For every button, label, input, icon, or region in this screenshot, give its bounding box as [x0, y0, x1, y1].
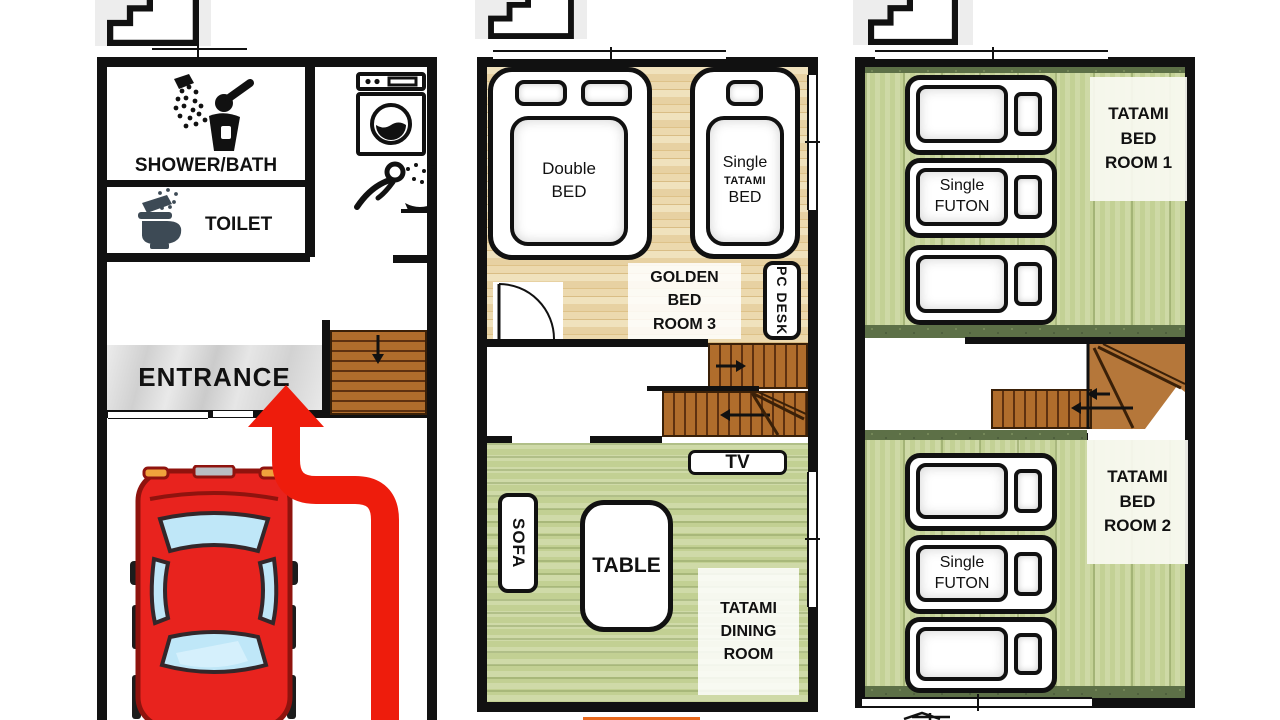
futon-mattress: Single FUTON — [916, 545, 1008, 602]
table: TABLE — [580, 500, 673, 632]
stair-direction-icons — [865, 344, 1185, 430]
floor3-panel: Single FUTON TATAMI BED ROOM 1 — [855, 57, 1195, 708]
wall — [487, 339, 708, 347]
window-tick — [992, 47, 994, 64]
pillow — [726, 80, 763, 106]
stairs-lower-flight — [662, 391, 808, 437]
window-tick — [197, 45, 199, 62]
dining-label-3: ROOM — [724, 643, 774, 666]
face-wash-icon — [345, 159, 437, 215]
dining-room-label: TATAMI DINING ROOM — [698, 568, 799, 695]
dining-label-2: DINING — [721, 620, 777, 643]
washing-machine-icon — [355, 71, 427, 157]
wall — [965, 337, 1185, 344]
futon-mattress — [916, 627, 1008, 681]
bedroom3-label-2: BED — [668, 289, 702, 312]
cutoff-icon-fragment — [900, 711, 960, 720]
shower-bath-label: SHOWER/BATH — [107, 155, 305, 177]
bedroom2-label-3: ROOM 2 — [1104, 514, 1171, 539]
pillow — [1014, 175, 1042, 219]
pillow — [1014, 469, 1042, 513]
futon-label-1: Single — [940, 553, 984, 574]
shower-icon — [152, 73, 262, 151]
single-bed-mattress: Single TATAMI BED — [706, 116, 784, 246]
tatami-edge — [865, 430, 1087, 440]
double-bed: Double BED — [488, 67, 652, 260]
pillow — [1014, 92, 1042, 136]
pc-desk: PC DESK — [763, 261, 801, 340]
sofa-label: SOFA — [508, 518, 528, 568]
toilet-label: TOILET — [205, 214, 310, 236]
bedroom1-label: TATAMI BED ROOM 1 — [1090, 77, 1187, 201]
wall — [393, 255, 437, 263]
down-arrow-icon — [332, 332, 425, 370]
single-tatami-bed: Single TATAMI BED — [690, 67, 800, 259]
single-bed-label-2: TATAMI — [724, 174, 766, 188]
floorplan-canvas: SHOWER/BATH TOILET — [0, 0, 1280, 720]
bedroom1-label-3: ROOM 1 — [1105, 151, 1172, 176]
futon-mattress — [916, 255, 1008, 313]
bedroom2-label: TATAMI BED ROOM 2 — [1087, 440, 1188, 564]
door-swing-area — [493, 282, 563, 339]
floor3-stairs-marker — [853, 0, 973, 45]
living-door-opening — [512, 436, 590, 443]
window-tick — [805, 141, 820, 143]
car-icon — [130, 465, 298, 720]
pillow — [515, 80, 567, 106]
window — [807, 472, 818, 607]
double-bed-mattress: Double BED — [510, 116, 628, 246]
single-bed-label-3: BED — [729, 188, 762, 209]
bedroom3-label-3: ROOM 3 — [653, 313, 716, 336]
futon-mattress — [916, 463, 1008, 519]
entrance-area: ENTRANCE — [107, 345, 322, 410]
bedroom1-label-1: TATAMI — [1108, 102, 1168, 127]
wall — [97, 253, 310, 262]
dining-label-1: TATAMI — [720, 597, 777, 620]
left-arrow-icon — [664, 393, 806, 435]
wall — [322, 320, 330, 415]
toilet-icon — [129, 187, 207, 251]
window-tick — [610, 47, 612, 64]
futon-single-labeled: Single FUTON — [905, 158, 1057, 238]
door-arc-icon — [493, 282, 563, 339]
futon-single-labeled: Single FUTON — [905, 535, 1057, 614]
futon-mattress — [916, 85, 1008, 143]
table-label: TABLE — [592, 554, 660, 578]
double-bed-label-1: Double — [542, 158, 596, 181]
window — [807, 75, 818, 210]
window — [862, 697, 1092, 708]
pillow — [1014, 552, 1042, 596]
double-bed-label-2: BED — [552, 181, 587, 204]
bedroom2-label-1: TATAMI — [1107, 465, 1167, 490]
floor2-panel: Double BED Single TATAMI BED GOLDEN BED … — [477, 57, 818, 712]
pillow — [1014, 262, 1042, 306]
entrance-label: ENTRANCE — [138, 362, 290, 393]
stairs-icon — [95, 0, 211, 46]
bedroom2-label-2: BED — [1120, 490, 1156, 515]
stairs-icon — [853, 0, 973, 45]
single-bed-label-1: Single — [723, 153, 767, 174]
futon — [905, 245, 1057, 325]
futon-label-2: FUTON — [935, 574, 990, 595]
sofa: SOFA — [498, 493, 538, 593]
bedroom1-label-2: BED — [1121, 127, 1157, 152]
window — [875, 50, 1108, 61]
futon-mattress: Single FUTON — [916, 168, 1008, 226]
floor1-stairs-marker — [95, 0, 211, 46]
window — [152, 48, 247, 59]
futon — [905, 75, 1057, 155]
futon — [905, 453, 1057, 531]
pillow — [581, 80, 632, 106]
window-tick — [977, 694, 979, 711]
futon — [905, 617, 1057, 693]
pc-desk-label: PC DESK — [774, 266, 790, 335]
futon-label-1: Single — [940, 176, 984, 197]
stairs-down — [330, 330, 427, 415]
tv-label: TV — [725, 452, 749, 474]
tatami-edge — [865, 67, 1185, 73]
stairs-icon — [475, 0, 587, 39]
entrance-step — [108, 411, 208, 419]
wall — [107, 180, 305, 187]
front-door-opening — [213, 411, 253, 417]
tv: TV — [688, 450, 787, 475]
floor2-stairs-marker — [475, 0, 587, 39]
bedroom3-label-1: GOLDEN — [650, 266, 718, 289]
floor1-panel: SHOWER/BATH TOILET — [97, 57, 437, 720]
bedroom3-label: GOLDEN BED ROOM 3 — [628, 263, 741, 339]
stairs-up-flight — [708, 343, 808, 389]
window-tick — [805, 538, 820, 540]
window — [493, 50, 726, 61]
futon-label-2: FUTON — [935, 197, 990, 218]
pillow — [1014, 633, 1042, 675]
right-arrow-icon — [710, 345, 806, 387]
